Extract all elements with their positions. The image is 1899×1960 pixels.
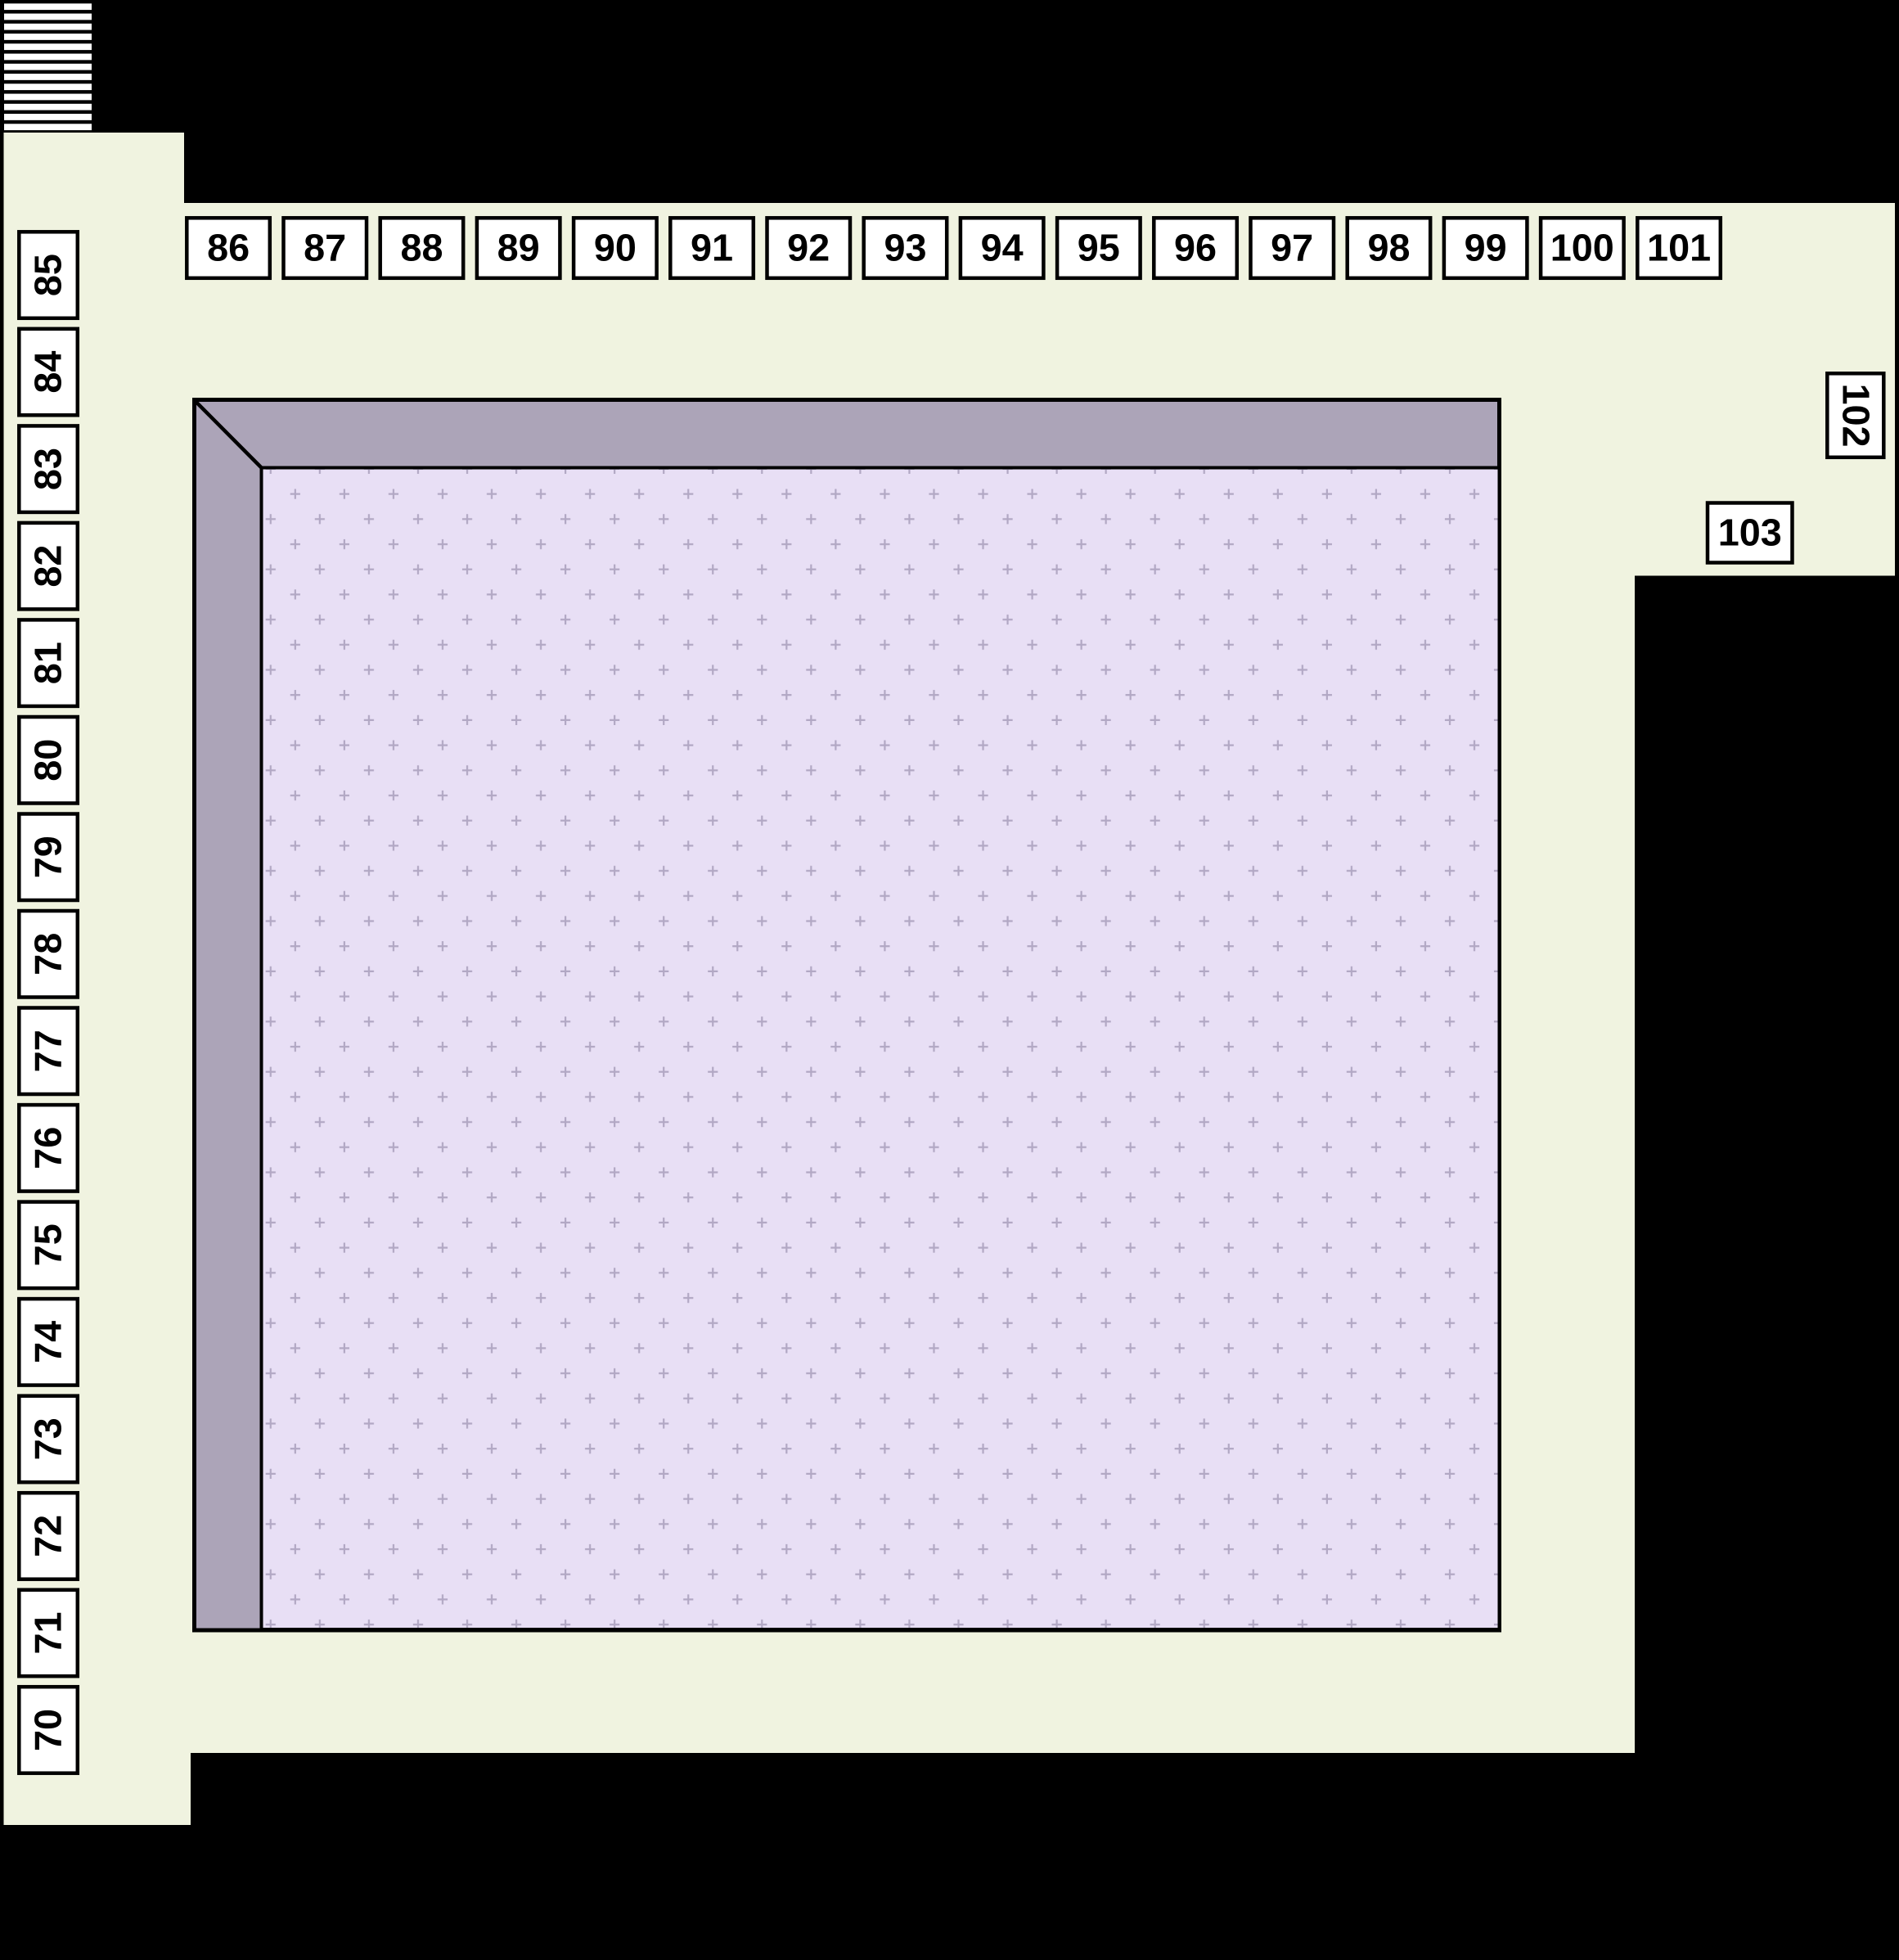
svg-text:74: 74	[27, 1321, 70, 1363]
svg-text:85: 85	[27, 254, 70, 296]
svg-text:87: 87	[304, 227, 346, 269]
svg-text:97: 97	[1271, 227, 1313, 269]
svg-text:77: 77	[27, 1030, 70, 1072]
svg-text:101: 101	[1647, 227, 1711, 269]
svg-text:95: 95	[1078, 227, 1120, 269]
svg-text:92: 92	[787, 227, 830, 269]
svg-text:103: 103	[1718, 511, 1782, 554]
svg-text:83: 83	[27, 448, 70, 490]
svg-text:90: 90	[594, 227, 637, 269]
svg-text:96: 96	[1174, 227, 1217, 269]
svg-text:102: 102	[1834, 383, 1877, 447]
svg-text:94: 94	[981, 227, 1024, 269]
svg-text:70: 70	[27, 1709, 70, 1751]
svg-text:72: 72	[27, 1515, 70, 1557]
svg-text:89: 89	[497, 227, 540, 269]
svg-text:98: 98	[1367, 227, 1410, 269]
svg-text:79: 79	[27, 836, 70, 878]
svg-text:100: 100	[1550, 227, 1614, 269]
svg-text:80: 80	[27, 739, 70, 782]
svg-text:91: 91	[691, 227, 733, 269]
svg-text:78: 78	[27, 933, 70, 975]
svg-text:81: 81	[27, 642, 70, 684]
svg-text:75: 75	[27, 1223, 70, 1266]
svg-text:99: 99	[1465, 227, 1507, 269]
svg-text:71: 71	[27, 1611, 70, 1654]
svg-text:73: 73	[27, 1417, 70, 1460]
svg-text:84: 84	[27, 351, 70, 394]
svg-text:93: 93	[884, 227, 926, 269]
svg-text:76: 76	[27, 1127, 70, 1169]
svg-text:88: 88	[400, 227, 443, 269]
svg-text:82: 82	[27, 545, 70, 588]
svg-text:86: 86	[207, 227, 250, 269]
